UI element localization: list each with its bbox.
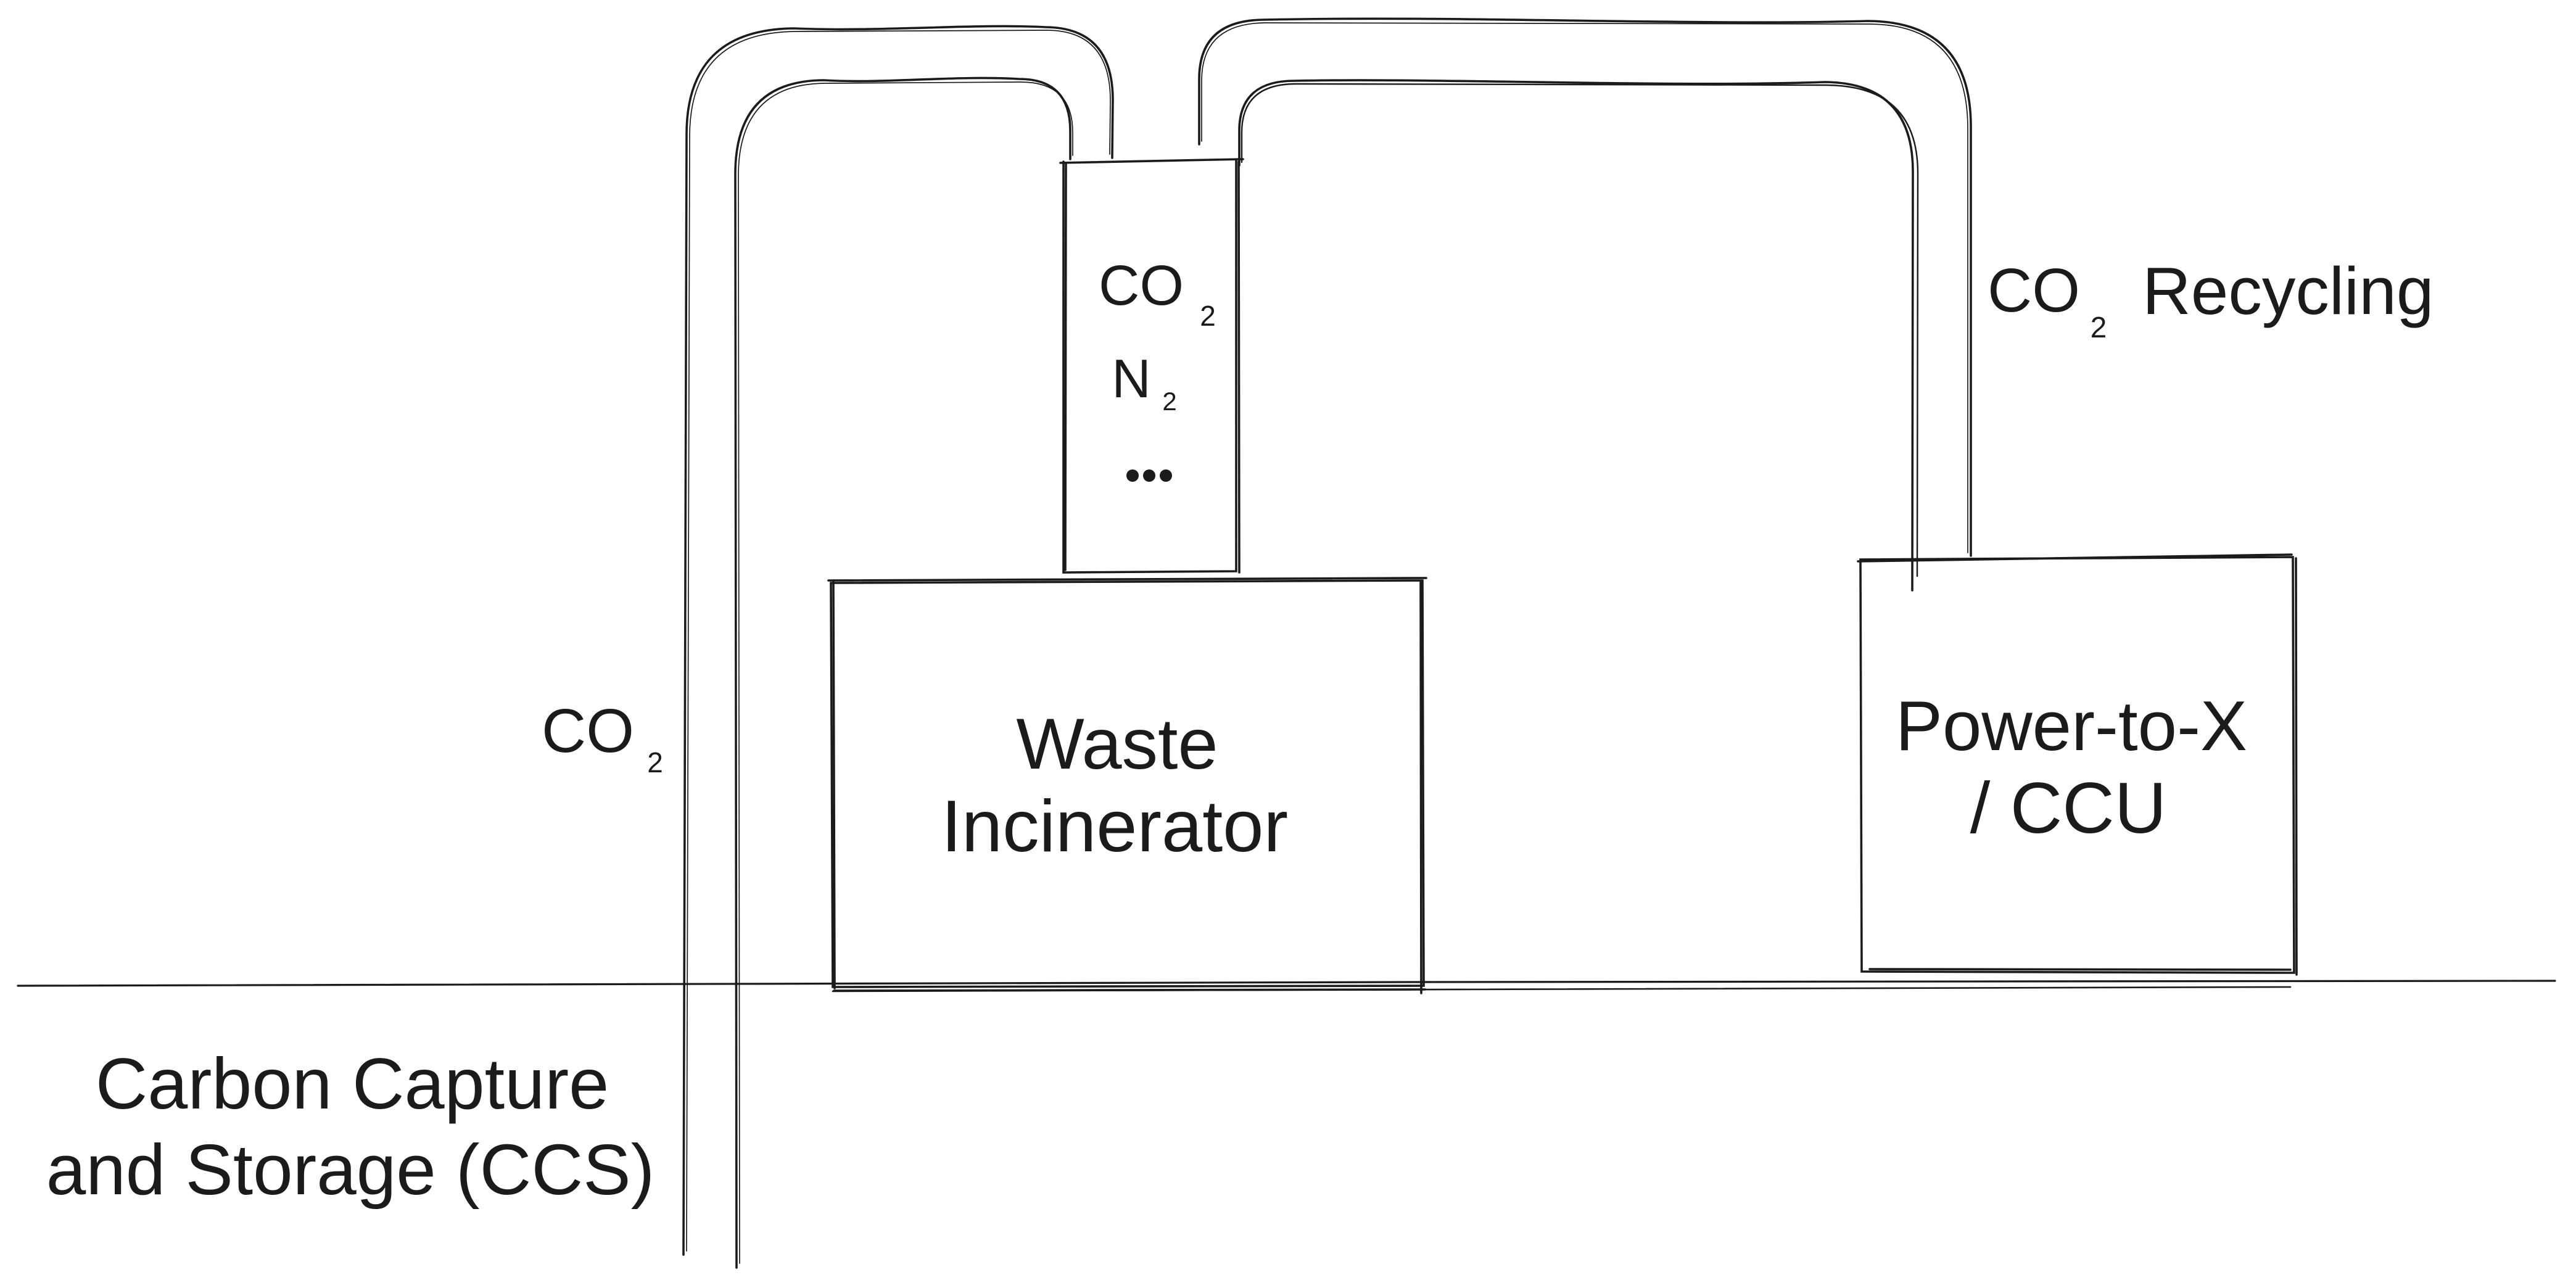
svg-text:2: 2 xyxy=(647,746,663,778)
svg-text:Carbon Capture: Carbon Capture xyxy=(96,1043,609,1124)
svg-text:Waste: Waste xyxy=(1016,703,1218,784)
svg-text:CO: CO xyxy=(1988,256,2080,325)
svg-text:2: 2 xyxy=(1162,387,1176,416)
svg-text:Incinerator: Incinerator xyxy=(941,785,1288,867)
svg-text:2: 2 xyxy=(2091,312,2107,344)
svg-text:CO: CO xyxy=(542,696,634,766)
svg-text:CO: CO xyxy=(1099,254,1184,317)
svg-text:Recycling: Recycling xyxy=(2142,254,2434,329)
svg-text:/ CCU: / CCU xyxy=(1970,767,2167,848)
svg-text:N: N xyxy=(1112,348,1151,409)
svg-text:and Storage (CCS): and Storage (CCS) xyxy=(46,1129,654,1210)
svg-text:2: 2 xyxy=(1200,300,1216,332)
svg-text:Power-to-X: Power-to-X xyxy=(1896,687,2247,766)
